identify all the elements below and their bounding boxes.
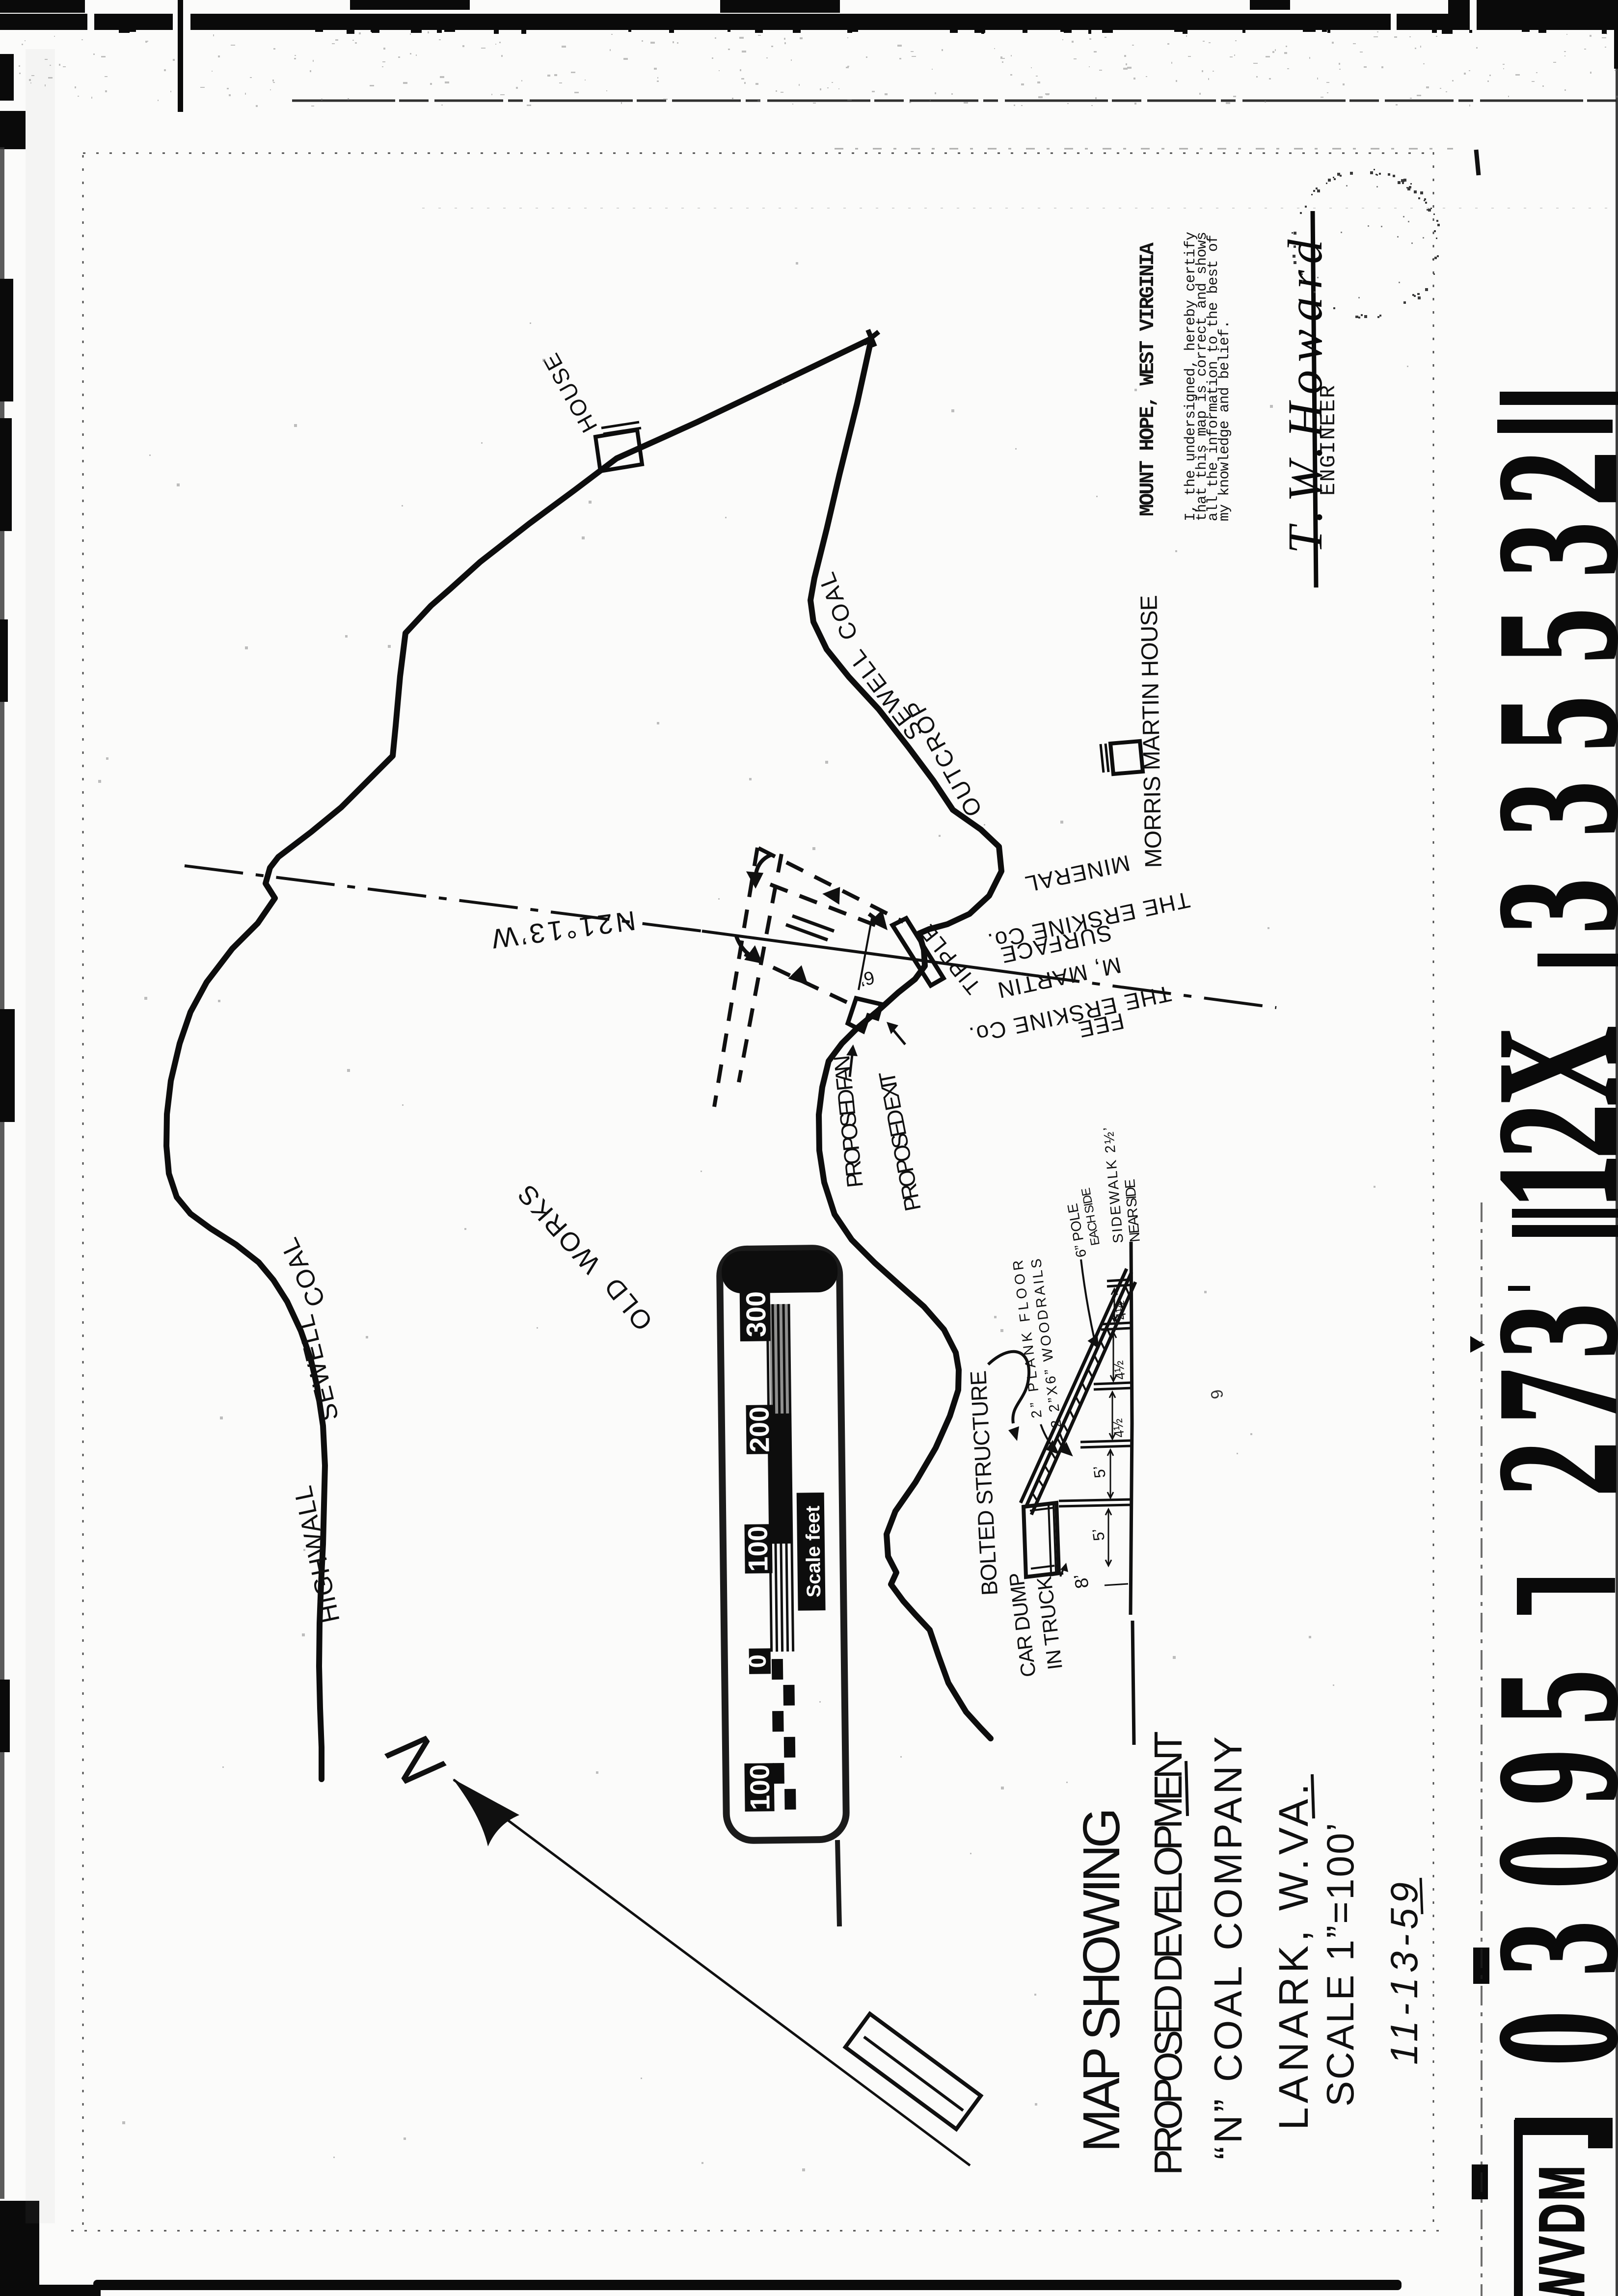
svg-text:MOUNT HOPE, WEST VIRGINIA: MOUNT HOPE, WEST VIRGINIA	[1136, 242, 1160, 516]
svg-text:5: 5	[1462, 696, 1618, 751]
svg-text:X: X	[1462, 1026, 1618, 1106]
svg-text:LANARK, W.VA.: LANARK, W.VA.	[1270, 1784, 1317, 2130]
svg-text:0: 0	[1462, 1834, 1618, 1889]
svg-text:MORRIS MARTIN HOUSE: MORRIS MARTIN HOUSE	[1136, 594, 1167, 868]
svg-text:“N” COAL COMPANY: “N” COAL COMPANY	[1206, 1736, 1250, 2160]
svg-text:PROPOSED DEVELOPMENT: PROPOSED DEVELOPMENT	[1146, 1731, 1190, 2175]
svg-text:9: 9	[1462, 1750, 1618, 1805]
svg-text:2: 2	[1462, 1442, 1618, 1496]
svg-text:MAP SHOWING: MAP SHOWING	[1073, 1806, 1131, 2152]
svg-text:3: 3	[1462, 879, 1618, 934]
svg-text:4½: 4½	[1109, 1418, 1127, 1439]
svg-text:5: 5	[1462, 1670, 1618, 1725]
svg-text:3: 3	[1462, 781, 1618, 836]
svg-text:200: 200	[744, 1406, 775, 1452]
svg-text:5: 5	[1462, 608, 1618, 663]
svg-text:100: 100	[742, 1526, 773, 1572]
svg-text:0: 0	[744, 1654, 771, 1668]
svg-text:WVDM: WVDM	[1526, 2163, 1597, 2296]
svg-text:4½: 4½	[1110, 1360, 1128, 1381]
svg-text:1: 1	[1462, 1154, 1618, 1209]
svg-text:4½: 4½	[1111, 1300, 1129, 1321]
svg-text:7: 7	[1462, 1369, 1618, 1424]
svg-text:5’: 5’	[1090, 1465, 1109, 1479]
svg-text:Scale feet: Scale feet	[802, 1506, 825, 1598]
svg-text:0: 0	[1462, 2011, 1618, 2066]
svg-text:my knowledge and belief.: my knowledge and belief.	[1216, 320, 1233, 521]
svg-text:300: 300	[740, 1291, 772, 1337]
svg-text:3: 3	[1462, 522, 1618, 577]
svg-text:3: 3	[1462, 1304, 1618, 1359]
svg-text:2: 2	[1462, 1104, 1618, 1159]
svg-text:100: 100	[744, 1764, 775, 1811]
svg-text:5’: 5’	[1089, 1527, 1108, 1542]
svg-text:2: 2	[1462, 451, 1618, 506]
svg-text:SCALE 1”=100’: SCALE 1”=100’	[1319, 1823, 1362, 2107]
